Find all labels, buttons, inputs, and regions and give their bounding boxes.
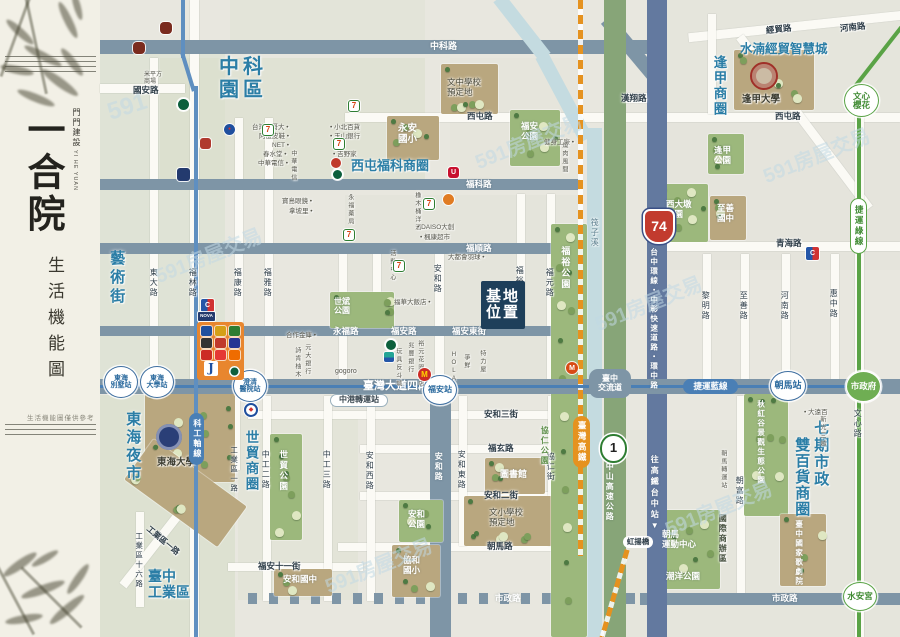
tree-icon [288, 491, 295, 498]
label-road-dongda: 東大路 [149, 268, 158, 298]
seven-eleven-icon: 7 [262, 124, 274, 136]
label-road-fuan-11th: 福安十一街 [258, 562, 301, 572]
label-road-wenxin: 文心路 [853, 409, 862, 439]
brand-letter-icon: J [204, 361, 218, 376]
district-shuinan: 水湳經貿智慧城 [740, 42, 828, 56]
tree-icon [424, 134, 429, 139]
tree-icon [403, 503, 408, 508]
telecom-icon: ● [224, 124, 235, 135]
brand-icon-red [200, 138, 211, 149]
label-school-zhishan: 至善 國中 [717, 204, 734, 224]
shield-highway-1: 1 [600, 434, 627, 463]
tree-icon [712, 137, 717, 142]
seven-eleven-icon: 7 [333, 138, 345, 150]
tree-icon [385, 310, 390, 315]
label-scanteak: 詩肯柚木 [293, 347, 300, 379]
label-chaoma-bus-terminal: 朝馬轉運站 [719, 450, 726, 490]
label-road-hanxiang: 漢翔路 [621, 94, 647, 104]
starbucks-icon [385, 339, 397, 351]
sidebar-rule [5, 429, 96, 430]
tree-icon [411, 585, 418, 592]
brand-icon-navy [177, 168, 190, 181]
tree-icon [288, 586, 297, 595]
label-highway-1: 中山高速公路 [605, 462, 614, 522]
label-xiaobei: • 小北百貨 [330, 124, 360, 131]
tree-icon [687, 188, 696, 197]
interchange-taichung: 臺中 交流道 [589, 369, 631, 398]
road-dongda [150, 58, 158, 383]
tree-icon [564, 560, 569, 565]
bamboo-leaf [64, 562, 91, 596]
label-hola: HOLA [450, 352, 457, 384]
mos-burger-icon: M [566, 362, 578, 374]
tree-icon [524, 533, 531, 540]
label-road-zhongke: 中科路 [430, 41, 457, 51]
tree-icon [557, 301, 566, 310]
label-sushi-express: 爭鮮 [462, 354, 469, 370]
label-shinkong-mitsukoshi: 新光三越 [818, 416, 825, 448]
tree-icon [748, 397, 753, 402]
label-road-fuyuan: 福元路 [545, 268, 554, 298]
label-road-henan-top: 河南路 [840, 22, 866, 34]
campus-seal-fengjia [750, 62, 778, 90]
station-donghai-villa: 東海 別墅站 [104, 366, 138, 398]
label-mi-square-mall: 米平方 商場 [144, 72, 162, 86]
road-anhe-west [367, 396, 375, 601]
tree-icon [228, 424, 233, 429]
label-road-zhonggong-3: 中工三路 [322, 450, 331, 490]
site-location-box: 基地 位置 [481, 281, 525, 329]
sidebar-rule [5, 434, 96, 435]
map-page: 中科路福科路福順路福安路永福路福安東街臺灣大道四段市政路市政路安和路國安路西屯路… [0, 0, 900, 637]
mrt-green-line-diag [852, 25, 900, 89]
tree-icon [818, 531, 827, 540]
label-library: 圖書館 [500, 469, 527, 479]
label-road-henan: 河南路 [780, 291, 789, 321]
sidebar-rule [5, 56, 96, 57]
tree-icon [489, 461, 494, 466]
label-school-site-wenxiao: 文小學校 預定地 [489, 508, 523, 528]
brand-icon [215, 338, 226, 348]
brand-icon [229, 326, 240, 336]
label-baodao-optical: 寶島眼鏡 • [282, 198, 312, 205]
tree-icon [560, 412, 569, 421]
brand-icon [215, 350, 226, 360]
label-testrite: 特力屋 [478, 350, 485, 374]
district-industrial: 臺中 工業區 [148, 568, 190, 600]
road-huizhong [831, 254, 839, 386]
tree-icon [701, 206, 706, 211]
tree-icon [499, 532, 508, 541]
label-park-fuan: 福安 公園 [521, 122, 538, 142]
tree-icon [565, 597, 572, 604]
label-chunshuitang: 春水堂 • [263, 151, 287, 158]
seven-eleven-icon: 7 [343, 229, 355, 241]
mrt-blue-line-badge: 捷運藍線 [683, 379, 738, 394]
bamboo-leaf [30, 548, 59, 569]
label-metro-badminton: 大都會羽球 • [448, 254, 485, 261]
bamboo-stem [20, 566, 82, 628]
brand-icon-red-circle [331, 158, 341, 168]
label-road-chaofu: 朝富路 [735, 476, 744, 506]
tree-icon [275, 528, 284, 537]
label-toysrus: 玩具反斗城 [394, 348, 401, 388]
starbucks-icon [229, 366, 240, 377]
river-fazi-top [493, 0, 550, 61]
label-cht-2: 中華電信 [289, 150, 296, 182]
label-road-chaoma: 朝馬路 [487, 542, 513, 552]
label-road-anhe-east: 安和東路 [457, 450, 466, 490]
label-intl-business-district: 國際商辦區 [718, 514, 727, 564]
district-tint [230, 0, 425, 40]
brand-icon [201, 338, 212, 348]
tree-icon [292, 511, 301, 520]
bamboo-leaf [0, 63, 34, 78]
hsr-line-curve [599, 549, 629, 637]
label-road-jingmao: 經貿路 [766, 24, 792, 36]
tree-icon [693, 557, 698, 562]
map-title: 生活機能圖 [42, 256, 67, 386]
tree-icon [426, 582, 435, 591]
label-coop-bank: 合作金庫 • [286, 332, 316, 339]
tree-icon [403, 579, 408, 584]
station-wenxin-yinghua: 文心 櫻花 [844, 84, 879, 117]
label-park-shibin: 世斌 公園 [334, 297, 350, 315]
project-name-en: YI HE YUAN [72, 150, 78, 191]
label-opera-house: 臺中國家歌劇院 [794, 520, 803, 587]
mrt-green-line-badge: 捷運綠線 [850, 198, 867, 254]
campus-seal-donghai [156, 424, 182, 450]
tree-icon [767, 434, 774, 441]
label-school-xiehe: 協和 國小 [403, 556, 420, 576]
district-7th-redev-2: 雙百貨商圈 [793, 437, 810, 517]
label-yuanta-bank: 元大銀行 [303, 344, 310, 376]
label-road-fushun: 福順路 [466, 244, 492, 254]
bamboo-leaf [5, 612, 44, 626]
label-school-anhe-jr: 安和國中 [283, 575, 317, 585]
label-road-anhe-3rd: 安和三街 [484, 410, 518, 420]
park-qiuhonggu [744, 394, 788, 516]
bamboo-leaf [1, 549, 39, 579]
kegong-axis-line-top [181, 0, 185, 58]
label-road-industrial-1: 工業區一路 [229, 446, 238, 494]
label-road-xitun-1: 西屯路 [467, 112, 493, 122]
label-chaoma-sports: 朝馬 運動中心 [662, 530, 696, 550]
label-yongfu-pharmacy: 永福藥局 [346, 194, 353, 226]
station-shuianggong: 水安宮 [843, 582, 877, 611]
carrefour-icon: C [201, 299, 214, 312]
label-road-anhe-2nd: 安和二街 [484, 491, 518, 501]
watermark: 591房屋交易 [590, 268, 706, 337]
road-zhongke-curve [601, 15, 663, 85]
road-zhongke [100, 40, 655, 54]
tree-icon [700, 520, 709, 529]
label-megabank: 兆豐銀行 [406, 342, 413, 374]
label-school-site-wenzhong: 文中學校 預定地 [447, 78, 481, 98]
label-fengkang-market: • 楓康超市 [420, 234, 450, 241]
mcdonalds-icon: M [418, 368, 431, 381]
road-anhe-3rd [248, 411, 578, 419]
hsr-badge: 臺灣高鐵 [573, 416, 590, 468]
tree-icon [226, 406, 231, 411]
label-school-yongan: 永安 國小 [398, 124, 417, 146]
label-campus-fengjia: 逢甲大學 [742, 95, 780, 106]
label-road-fuxuan: 福玄路 [488, 444, 514, 454]
bamboo-stem [0, 550, 35, 635]
seven-eleven-icon: 7 [423, 198, 435, 210]
tree-icon [776, 83, 781, 88]
bamboo-leaf [56, 0, 81, 39]
station-donghai-univ: 東海 大學站 [140, 366, 174, 398]
tree-icon [527, 150, 534, 157]
road-fuke [100, 179, 580, 190]
label-expressway-74: 台中環線・中彰快速道路・環中路 [649, 248, 658, 391]
tree-icon [468, 499, 473, 504]
tree-icon [793, 94, 802, 103]
disclaimer: 生活機能圖僅供參考 [27, 412, 95, 422]
tree-icon [675, 224, 682, 231]
bamboo-leaf [16, 87, 56, 109]
label-napoli: 拿坡里 • [289, 208, 313, 215]
label-park-xieren: 協仁公園 [540, 426, 549, 466]
tree-icon [784, 517, 789, 522]
district-donghai-night-market: 東海夜市 [124, 411, 141, 483]
tree-icon [474, 531, 479, 536]
tree-icon [559, 375, 566, 382]
cpc-gas-icon: ◆ [244, 403, 258, 417]
familymart-icon [384, 352, 394, 362]
label-park-fuyu: 福裕公園 [560, 246, 570, 290]
sidebar-rule [5, 61, 96, 62]
tree-icon [662, 187, 667, 192]
label-road-fuan: 福安路 [391, 327, 417, 337]
sidebar-rule [5, 66, 96, 67]
label-road-industrial-16: 工業區十六路 [134, 532, 143, 589]
tree-icon [426, 524, 431, 529]
label-gogoro: gogoro [335, 368, 357, 376]
uniqlo-icon: U [448, 167, 459, 178]
label-road-shizheng-1: 市政路 [495, 594, 521, 604]
bamboo-leaf [4, 17, 36, 47]
tree-icon [384, 299, 391, 306]
label-road-yongfu: 永福路 [333, 327, 359, 337]
brand-icon [229, 350, 240, 360]
tree-icon [558, 338, 563, 343]
starbucks-icon [177, 98, 190, 111]
kegong-axis-line-jog [180, 52, 196, 91]
brand-icon [201, 326, 212, 336]
label-windsor-hotel: 裕元花園酒店 [416, 340, 423, 388]
shield-expressway-74: 74 [643, 209, 675, 244]
label-road-liming: 黎明路 [701, 291, 710, 321]
label-road-fukang: 福康路 [233, 268, 242, 298]
label-road-zhishan: 至善路 [739, 291, 748, 321]
seven-eleven-icon: 7 [348, 100, 360, 112]
tree-icon [740, 57, 747, 64]
tree-icon [771, 398, 776, 403]
label-park-fengjia: 逢甲 公園 [714, 146, 731, 166]
tree-icon [475, 100, 484, 109]
label-road-guoan: 國安路 [133, 86, 159, 96]
tree-icon [514, 113, 519, 118]
label-park-anhe: 安和 公園 [408, 510, 425, 530]
mrt-blue-line [100, 385, 860, 388]
kegong-axis-badge: 科工軸線 [189, 413, 204, 465]
tree-icon [274, 437, 279, 442]
tree-icon [707, 550, 714, 557]
road-jingmao [688, 11, 900, 42]
district-shimao: 世貿商圈 [243, 430, 259, 492]
temple-icon [133, 42, 145, 54]
brand-icon [201, 350, 212, 360]
label-road-qinghai: 青海路 [776, 239, 802, 249]
tree-icon [562, 486, 569, 493]
label-road-anhe-west: 安和西路 [365, 451, 374, 491]
tree-icon [563, 523, 572, 532]
station-chaoma: 朝馬站 [770, 371, 806, 401]
bamboo-leaf [20, 577, 66, 601]
mrt-green-line [857, 90, 861, 637]
station-city-hall: 市政府 [846, 371, 881, 402]
label-road-xitun-2: 西屯路 [775, 112, 801, 122]
sidebar-rule [5, 71, 96, 72]
tree-icon [555, 227, 560, 232]
watermark: 591房屋交易 [150, 220, 266, 289]
label-road-industrial-1-diag: 工業區一路 [145, 524, 182, 557]
label-fuhua-hotel: 福華大飯店 • [394, 299, 431, 306]
watermark: 591房屋交易 [758, 120, 874, 189]
label-hongyang-bridge: 虹揚橋 [623, 536, 653, 548]
seven-eleven-icon: 7 [393, 260, 405, 272]
tree-icon [561, 449, 566, 454]
label-to-hsr-station: 往高鐵台中站▼ [650, 455, 659, 533]
label-park-qiuhonggu: 秋紅谷景觀生態公園 [756, 400, 765, 486]
district-fengjia: 逢甲商圈 [711, 55, 727, 117]
label-yakiniku: 燒肉風間 [560, 142, 567, 174]
map-canvas: 中科路福科路福順路福安路永福路福安東街臺灣大道四段市政路市政路安和路國安路西屯路… [0, 0, 900, 637]
brand-icon [229, 338, 240, 348]
brand-icon [215, 326, 226, 336]
tree-icon [539, 122, 548, 131]
station-zhonggang-transfer: 中港轉運站 [330, 394, 388, 407]
brand-cluster-block: J [197, 322, 244, 380]
sidebar-rule [5, 424, 96, 425]
tree-icon [396, 548, 401, 553]
label-road-fulin: 福林路 [188, 268, 197, 298]
tree-icon [568, 307, 575, 314]
bamboo-leaf [70, 0, 85, 21]
label-road-fuya: 福雅路 [263, 268, 272, 298]
carrefour-icon: C [806, 247, 819, 260]
label-park-chaoyang: 潮洋公園 [666, 572, 700, 582]
label-road-zhonggong-2: 中工二路 [261, 450, 270, 490]
label-road-anhe-lower: 安和路 [434, 452, 443, 482]
nova-icon: NOVA [198, 312, 215, 321]
tree-icon [775, 472, 784, 481]
bamboo-stem [23, 0, 48, 94]
tree-icon [445, 67, 450, 72]
label-net: NET • [272, 142, 289, 149]
tree-icon [463, 102, 468, 107]
label-road-anhe-upper: 安和路 [433, 264, 442, 294]
tree-icon [779, 436, 786, 443]
tree-icon [391, 119, 396, 124]
label-cht-1: 中華電信 • [258, 160, 288, 167]
label-fazi-creek: 筏子溪 [590, 218, 599, 248]
district-zhongke-park: 中科 園區 [219, 56, 267, 102]
temple-icon [160, 22, 172, 34]
developer-name: 門門建設 [71, 108, 82, 148]
bamboo-leaf [47, 592, 86, 627]
brand-icon-orange-circle [443, 194, 454, 205]
label-daiso: • DAISO大創 [417, 224, 454, 231]
label-road-shizheng-2: 市政路 [772, 594, 798, 604]
label-road-fuke: 福科路 [466, 180, 492, 190]
road-wenxin [855, 103, 864, 637]
district-xitun-fuke: 西屯福科商圈 [351, 159, 429, 174]
label-road-huizhong: 惠中路 [829, 289, 838, 319]
label-park-shimao: 世貿公園 [278, 450, 288, 492]
road-fushun [100, 243, 580, 254]
tree-icon [566, 233, 575, 242]
project-title: 一合院 [24, 110, 62, 236]
district-art-street: 藝術街 [108, 250, 125, 307]
starbucks-icon [332, 169, 343, 180]
